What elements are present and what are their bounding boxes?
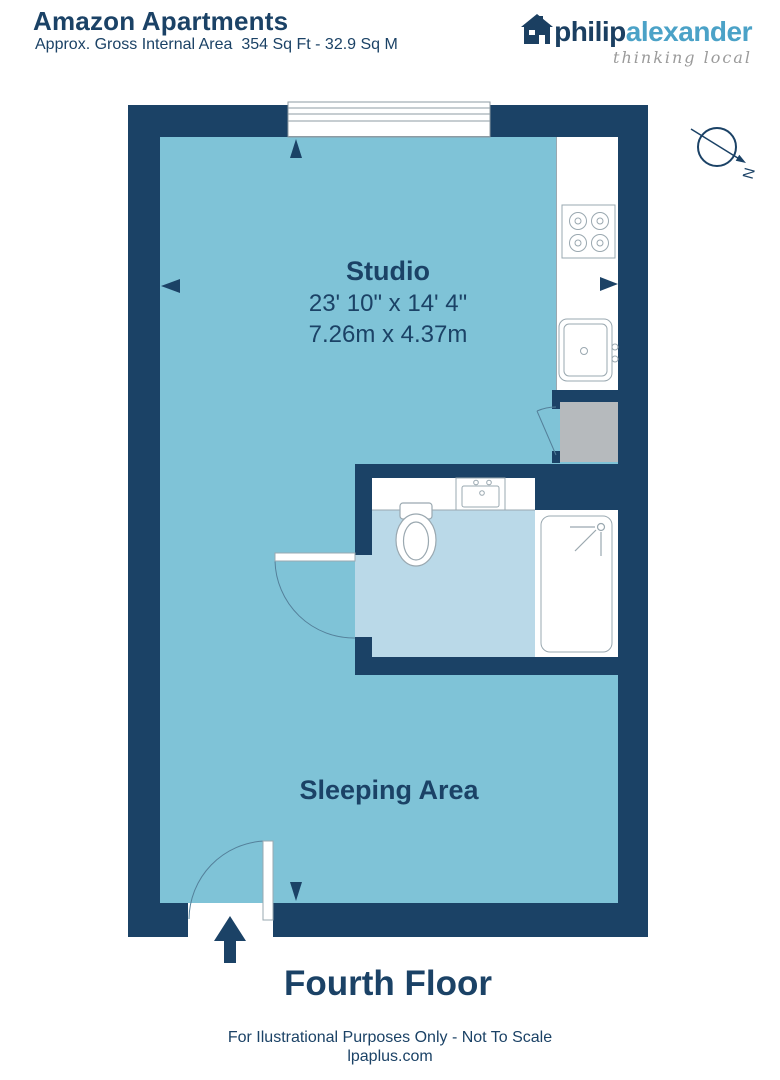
window-icon [288, 102, 490, 137]
floorplan-page: Amazon Apartments Approx. Gross Internal… [0, 0, 780, 1080]
floorplan-drawing: N Studio 23' 10" x 14' 4" 7.26m x 4.37m … [0, 0, 780, 1080]
studio-label: Studio [346, 256, 430, 286]
wash-basin-icon [456, 478, 505, 510]
toilet-icon [396, 503, 436, 566]
cupboard-jamb-bottom [552, 451, 560, 463]
kitchen-sink-icon [559, 319, 618, 381]
compass-icon: N [691, 128, 758, 181]
storage-cupboard [560, 402, 618, 462]
compass-north-label: N [739, 166, 758, 181]
shower-icon [535, 510, 618, 657]
studio-dims-imperial: 23' 10" x 14' 4" [309, 290, 467, 317]
bathroom-door-gap [355, 555, 372, 637]
floor-name: Fourth Floor [128, 966, 648, 1001]
sleeping-area-label: Sleeping Area [299, 775, 479, 805]
cupboard-wall [552, 390, 648, 402]
bathroom-counter [372, 478, 535, 510]
studio-dims-metric: 7.26m x 4.37m [309, 321, 468, 348]
website: lpaplus.com [0, 1048, 780, 1066]
disclaimer: For Ilustrational Purposes Only - Not To… [0, 1029, 780, 1047]
